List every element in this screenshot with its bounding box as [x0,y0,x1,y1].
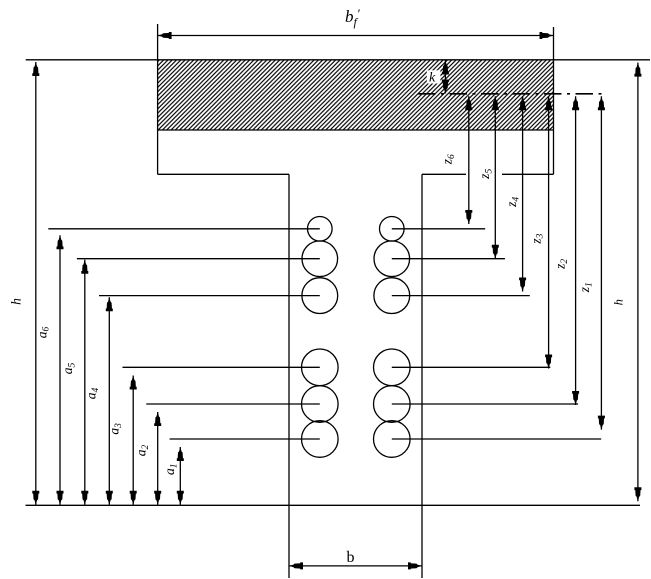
svg-text:b: b [347,549,355,566]
svg-text:k: k [429,71,436,86]
svg-text:h: h [8,298,23,305]
svg-text:h: h [612,299,626,305]
